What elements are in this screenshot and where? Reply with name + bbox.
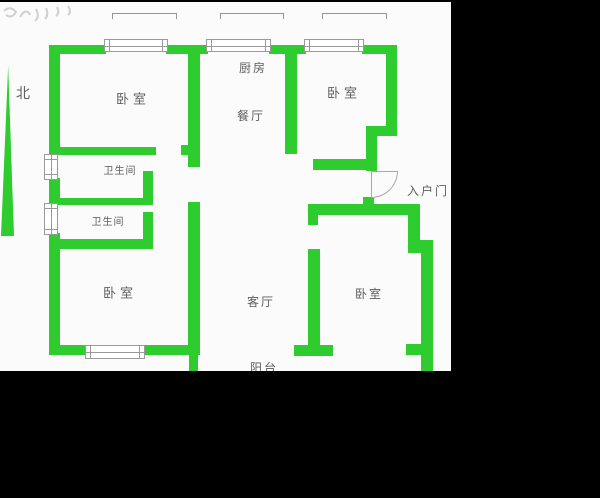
wall bbox=[313, 159, 367, 170]
window bbox=[44, 203, 58, 235]
dimension-bracket bbox=[322, 13, 387, 20]
wall bbox=[166, 45, 208, 54]
room-label-bedroom-ne: 卧室 bbox=[327, 88, 361, 101]
wall bbox=[421, 355, 433, 371]
wall bbox=[366, 126, 377, 171]
window bbox=[104, 39, 168, 52]
floorplan-canvas: 北 卧室 厨房 餐厅 卧室 卫生 bbox=[0, 2, 451, 371]
wall bbox=[49, 147, 156, 155]
wall bbox=[308, 215, 318, 225]
entry-door-swing-icon bbox=[371, 171, 398, 198]
wall bbox=[308, 249, 320, 346]
room-label-dining: 餐厅 bbox=[237, 110, 265, 122]
dimension-bracket bbox=[220, 13, 284, 20]
room-label-bedroom-sw: 卧室 bbox=[103, 288, 137, 301]
north-label: 北 bbox=[16, 87, 30, 101]
watermark-scribble bbox=[2, 3, 87, 33]
room-label-bedroom-se: 卧室 bbox=[355, 288, 383, 300]
wall bbox=[285, 45, 297, 154]
window bbox=[206, 39, 271, 52]
window bbox=[85, 345, 145, 359]
wall bbox=[421, 242, 433, 355]
wall bbox=[363, 197, 374, 205]
wall bbox=[294, 345, 333, 356]
north-arrow-icon bbox=[1, 66, 14, 236]
window bbox=[304, 39, 364, 52]
room-label-bath-lower: 卫生间 bbox=[92, 218, 125, 228]
entry-door-label: 入户门 bbox=[407, 185, 449, 197]
dimension-bracket bbox=[112, 13, 177, 20]
room-label-kitchen: 厨房 bbox=[239, 62, 267, 74]
wall bbox=[143, 345, 200, 355]
room-label-balcony: 阳台 bbox=[250, 362, 278, 371]
wall bbox=[49, 345, 88, 355]
screenshot-root: { "plan": { "compass_label": "北", "rooms… bbox=[0, 0, 600, 498]
wall bbox=[143, 171, 153, 205]
wall bbox=[49, 239, 153, 249]
wall bbox=[386, 45, 397, 132]
wall bbox=[49, 233, 60, 355]
wall bbox=[188, 202, 200, 349]
wall bbox=[49, 198, 147, 205]
wall bbox=[406, 344, 421, 355]
window bbox=[44, 154, 58, 180]
wall bbox=[308, 204, 410, 215]
room-label-living: 客厅 bbox=[247, 296, 275, 308]
wall bbox=[49, 45, 60, 155]
room-label-bath-upper: 卫生间 bbox=[104, 167, 137, 177]
wall bbox=[188, 51, 200, 167]
room-label-bedroom-nw: 卧室 bbox=[116, 94, 150, 107]
wall bbox=[181, 145, 188, 155]
